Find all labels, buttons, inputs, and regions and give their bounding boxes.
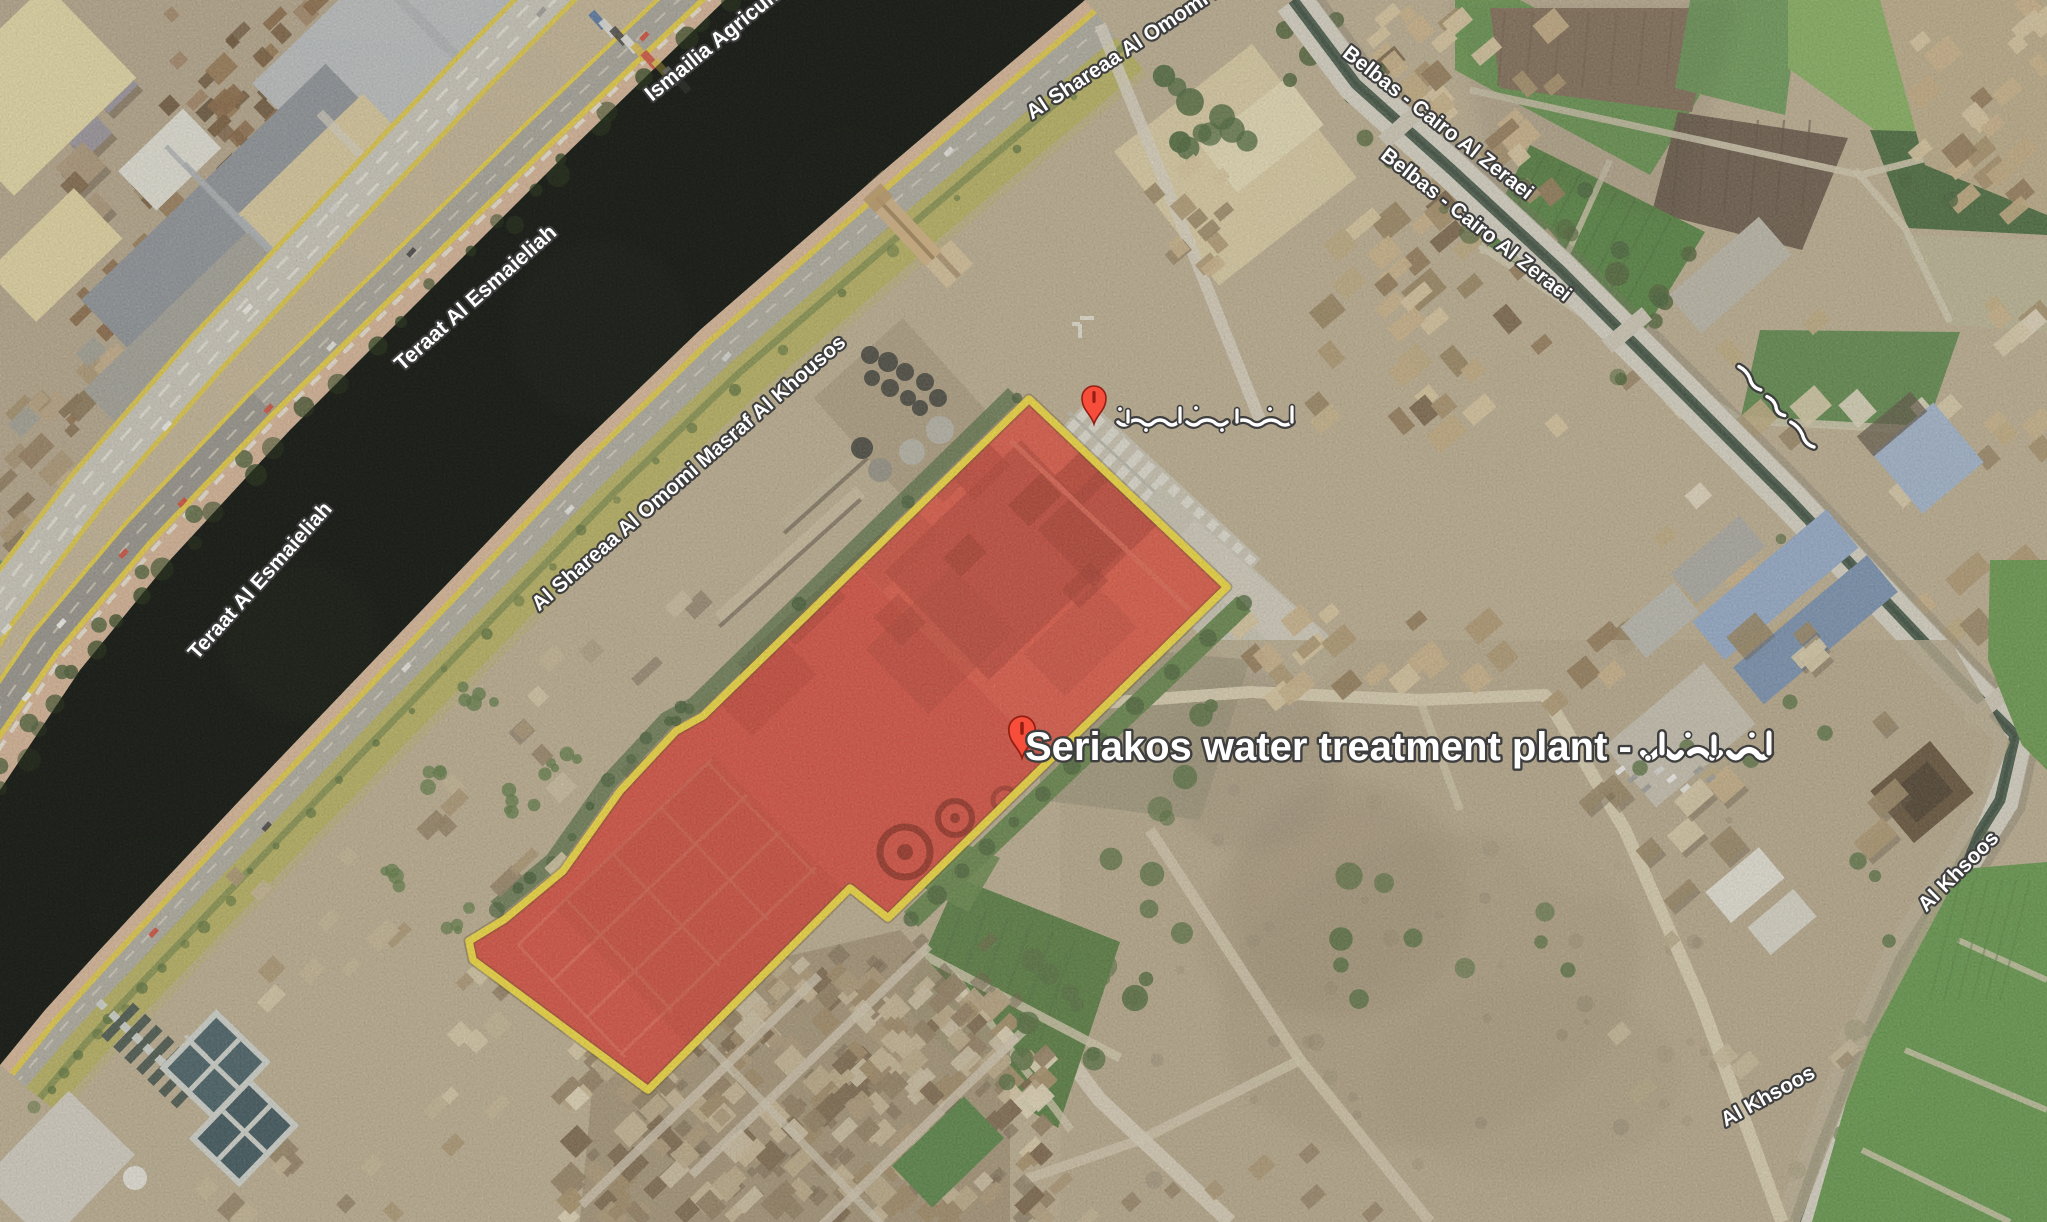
- svg-text:Seriakos water treatment plant: Seriakos water treatment plant -: [1025, 725, 1632, 769]
